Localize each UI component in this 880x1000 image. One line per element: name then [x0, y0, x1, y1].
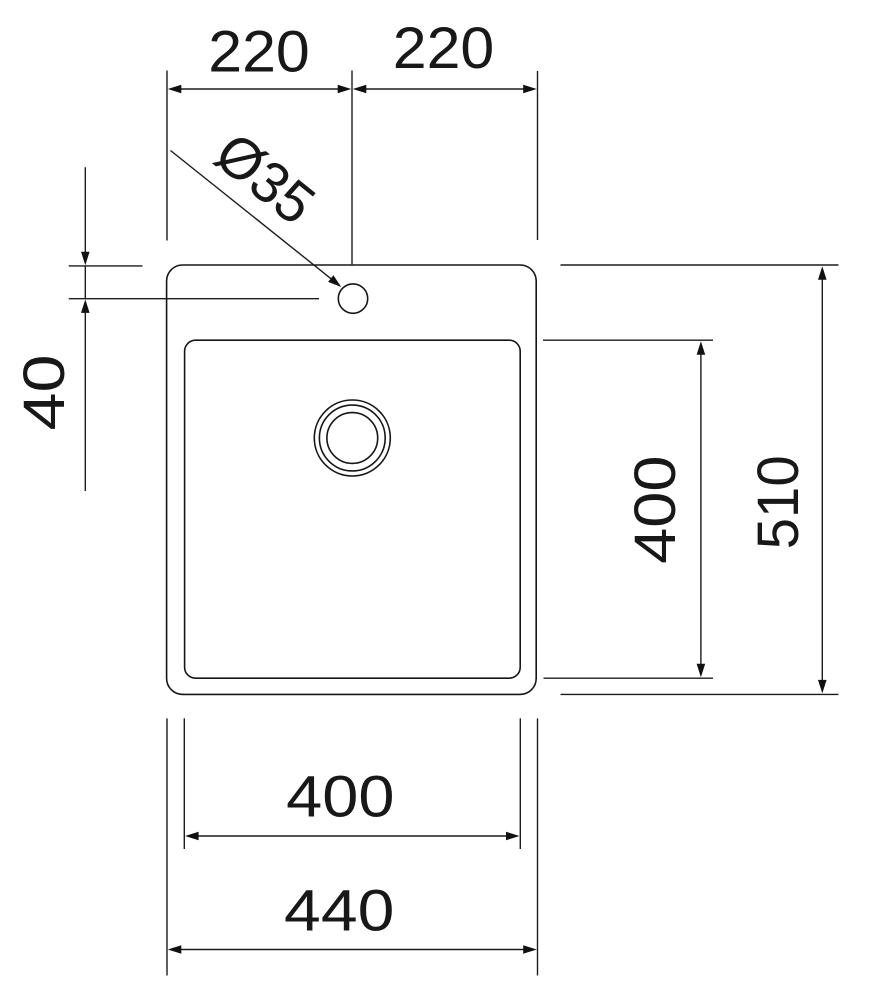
svg-text:40: 40 — [13, 354, 77, 430]
svg-text:220: 220 — [393, 15, 495, 80]
svg-text:220: 220 — [208, 19, 310, 84]
svg-text:440: 440 — [284, 879, 394, 943]
svg-text:400: 400 — [286, 764, 394, 829]
svg-text:400: 400 — [623, 456, 688, 564]
svg-text:510: 510 — [746, 455, 811, 549]
